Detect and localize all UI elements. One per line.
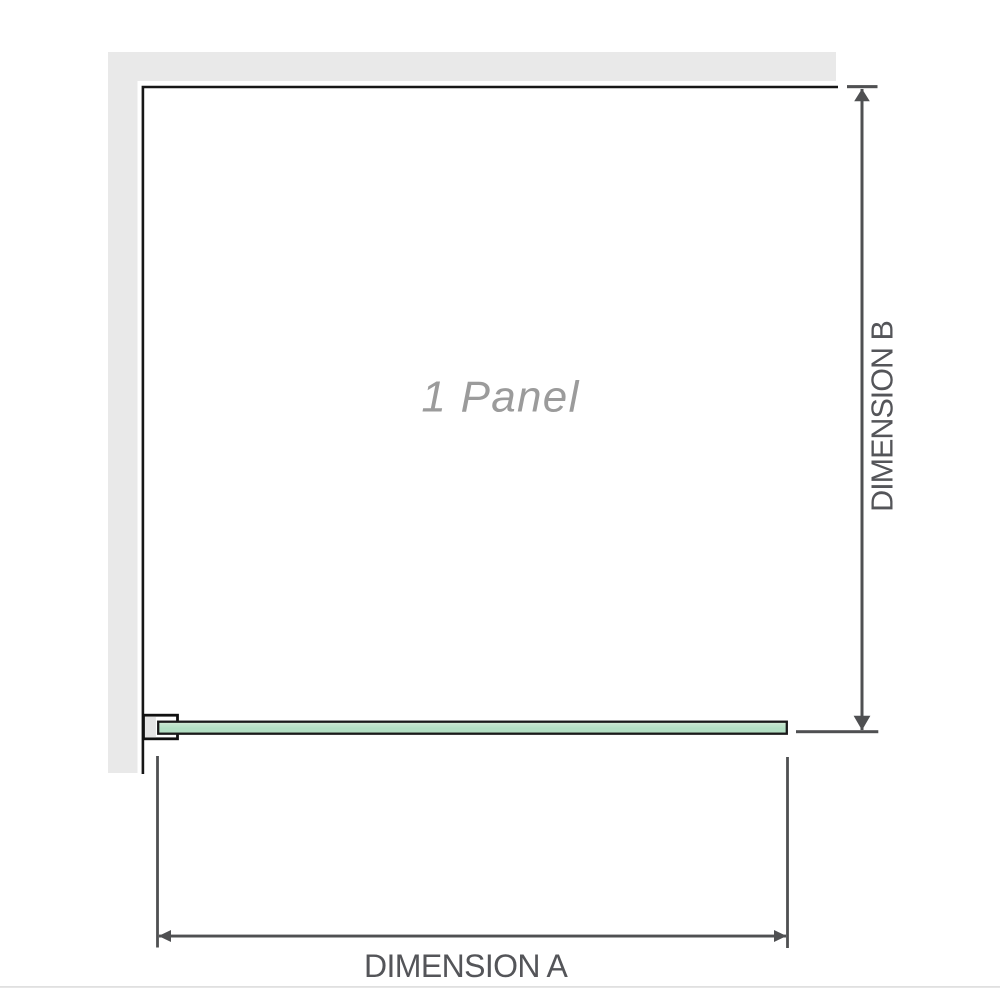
svg-text:DIMENSION B: DIMENSION B — [866, 321, 900, 512]
svg-text:DIMENSION A: DIMENSION A — [364, 948, 568, 984]
svg-text:1 Panel: 1 Panel — [421, 373, 579, 422]
